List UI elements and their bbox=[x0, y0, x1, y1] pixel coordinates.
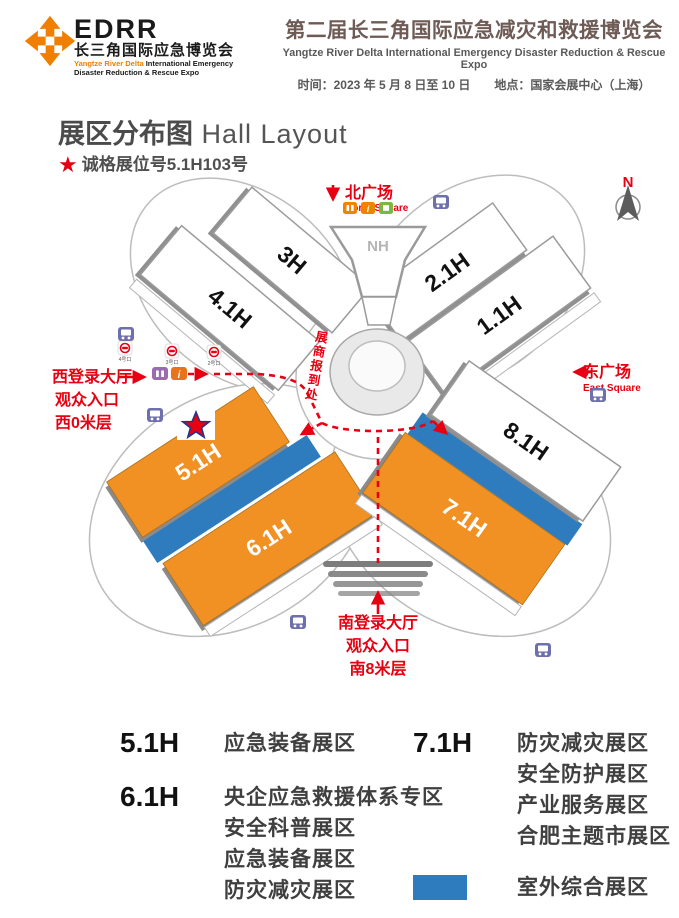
legend-line: 安全防护展区 bbox=[517, 759, 671, 790]
svg-text:2号口: 2号口 bbox=[208, 361, 221, 367]
expo-title-en: Yangtze River Delta International Emerge… bbox=[272, 47, 676, 71]
legend-code: 5.1H bbox=[120, 728, 198, 758]
info-icon: i bbox=[361, 202, 375, 214]
svg-text:i: i bbox=[178, 370, 181, 381]
svg-text:4号口: 4号口 bbox=[119, 357, 132, 363]
restroom-icon bbox=[152, 367, 168, 380]
expo-schedule: 时间：2023 年 5 月 8 日至 10 日 地点：国家会展中心（上海） bbox=[272, 76, 676, 93]
south-entrance-label: 南登录大厅 bbox=[338, 613, 418, 632]
legend-code: 7.1H bbox=[413, 728, 491, 758]
legend-line: 室外综合展区 bbox=[517, 872, 649, 903]
bus-icon bbox=[147, 408, 163, 422]
svg-text:南8米层: 南8米层 bbox=[350, 659, 407, 678]
logo-acronym: EDRR bbox=[74, 16, 284, 42]
bus-icon bbox=[535, 643, 551, 657]
central-ring bbox=[330, 329, 424, 415]
legend-line: 应急装备展区 bbox=[224, 728, 356, 759]
legend-line: 应急装备展区 bbox=[224, 844, 444, 875]
bus-icon bbox=[590, 388, 606, 402]
legend-item-5-1h: 5.1H 应急装备展区 bbox=[120, 728, 356, 759]
svg-text:NH: NH bbox=[367, 238, 389, 255]
east-square-label: 东广场 bbox=[583, 362, 631, 381]
metro-exit-icon: 4号口 bbox=[118, 341, 132, 363]
svg-text:西0米层: 西0米层 bbox=[55, 413, 112, 432]
legend-line: 产业服务展区 bbox=[517, 790, 671, 821]
service-icon bbox=[379, 202, 393, 214]
logo-cn-name: 长三角国际应急博览会 bbox=[74, 42, 284, 59]
legend-item-outdoor: 室外综合展区 bbox=[413, 872, 649, 903]
expo-title-cn: 第二届长三角国际应急减灾和救援博览会 bbox=[272, 13, 676, 43]
legend-line: 央企应急救援体系专区 bbox=[224, 782, 444, 813]
expo-hall-layout-page: EDRR 长三角国际应急博览会 Yangtze River Delta Inte… bbox=[0, 0, 679, 918]
legend-code: 6.1H bbox=[120, 782, 198, 812]
logo-en-line2: Disaster Reduction & Rescue Expo bbox=[74, 68, 284, 77]
edrr-logo-mark bbox=[24, 12, 76, 70]
hall-map: 3H 4.1H 2.1H 1.1H 5.1H bbox=[0, 165, 679, 710]
bus-icon bbox=[433, 195, 449, 209]
outdoor-color-swatch bbox=[413, 875, 467, 900]
restroom-icon bbox=[343, 202, 357, 214]
info-icon: i bbox=[171, 367, 187, 381]
expo-header: 第二届长三角国际应急减灾和救援博览会 Yangtze River Delta I… bbox=[272, 13, 676, 93]
legend-line: 安全科普展区 bbox=[224, 813, 444, 844]
legend-line: 防灾减灾展区 bbox=[224, 875, 444, 906]
bus-icon bbox=[118, 327, 134, 341]
metro-exit-icon: 3号口 bbox=[165, 344, 179, 366]
legend-item-6-1h: 6.1H 央企应急救援体系专区 安全科普展区 应急装备展区 防灾减灾展区 bbox=[120, 782, 444, 906]
svg-text:观众入口: 观众入口 bbox=[346, 636, 410, 655]
booth-star bbox=[177, 410, 215, 440]
legend-line: 防灾减灾展区 bbox=[517, 728, 671, 759]
west-entrance-label: 西登录大厅 bbox=[52, 367, 132, 386]
compass-north-icon: N bbox=[616, 174, 640, 221]
metro-exit-icon: 2号口 bbox=[207, 345, 221, 367]
svg-text:观众入口: 观众入口 bbox=[55, 390, 119, 409]
page-title: 展区分布图 Hall Layout bbox=[58, 112, 348, 151]
legend-item-7-1h: 7.1H 防灾减灾展区 安全防护展区 产业服务展区 合肥主题市展区 bbox=[413, 728, 671, 852]
north-square-label: 北广场 bbox=[345, 183, 393, 202]
bus-icon bbox=[290, 615, 306, 629]
logo-text-block: EDRR 长三角国际应急博览会 Yangtze River Delta Inte… bbox=[74, 16, 284, 77]
logo-en-line1: Yangtze River Delta International Emerge… bbox=[74, 59, 284, 68]
pinwheel-arrows-icon bbox=[24, 12, 76, 70]
svg-text:3号口: 3号口 bbox=[166, 360, 179, 366]
legend-line: 合肥主题市展区 bbox=[517, 821, 671, 852]
